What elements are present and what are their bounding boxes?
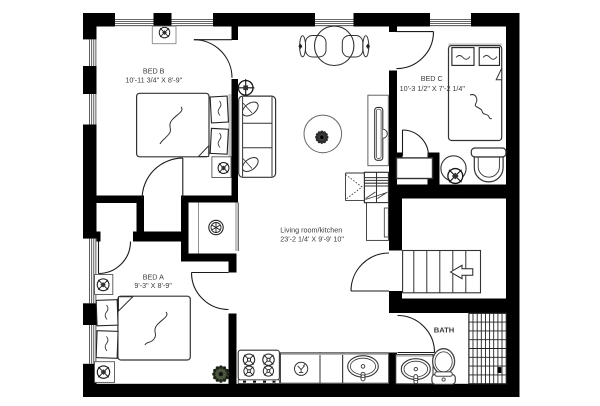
- svg-text:BATH: BATH: [434, 325, 455, 334]
- svg-text:23'-2 1/4' X 9'-9' 10": 23'-2 1/4' X 9'-9' 10": [280, 235, 344, 244]
- svg-text:BED B: BED B: [143, 67, 165, 76]
- svg-text:10'-3 1/2" X 7'-2 1/4": 10'-3 1/2" X 7'-2 1/4": [400, 84, 466, 93]
- svg-text:BED C: BED C: [421, 74, 443, 83]
- svg-text:10'-11 3/4" X 8'-9": 10'-11 3/4" X 8'-9": [125, 75, 182, 84]
- svg-text:BED A: BED A: [143, 272, 164, 281]
- svg-text:9'-3" X 8'-9": 9'-3" X 8'-9": [134, 281, 172, 290]
- svg-text:Living room/kitchen: Living room/kitchen: [280, 225, 342, 234]
